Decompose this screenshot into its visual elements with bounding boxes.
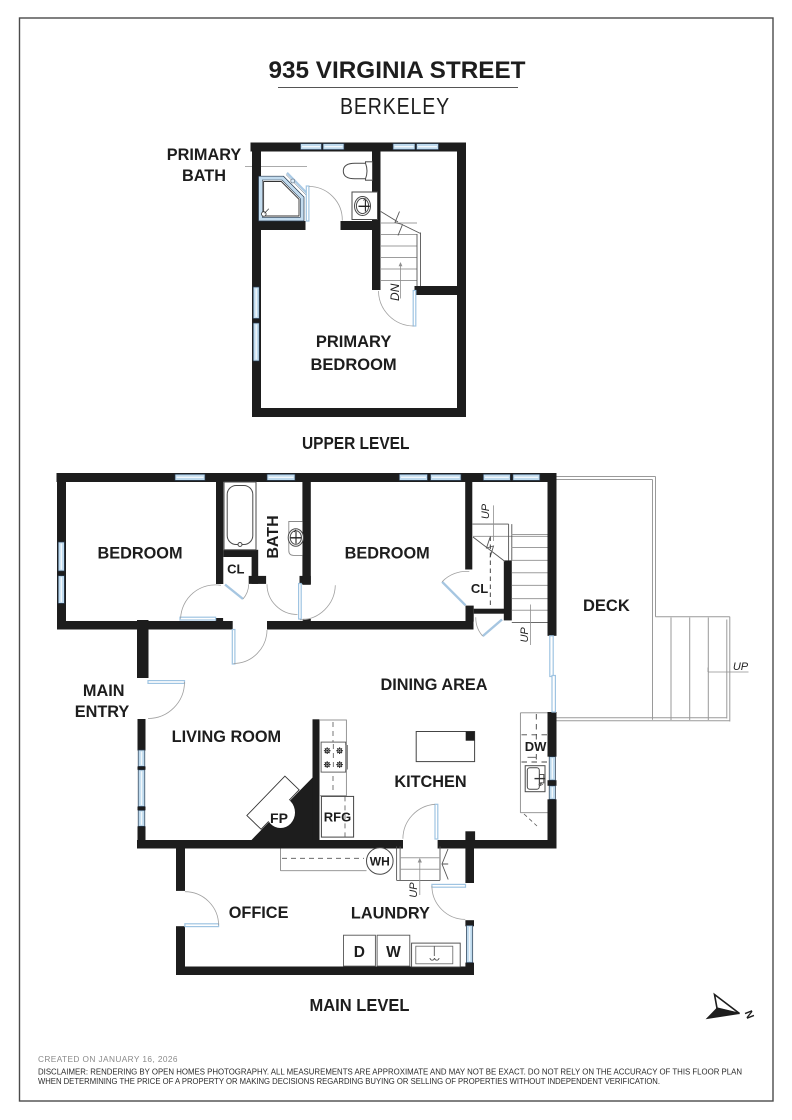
svg-text:DISCLAIMER: RENDERING BY OPEN: DISCLAIMER: RENDERING BY OPEN HOMES PHOT… [38, 1067, 742, 1077]
svg-text:ENTRY: ENTRY [75, 703, 130, 721]
svg-text:PRIMARY: PRIMARY [167, 146, 242, 164]
svg-text:BEDROOM: BEDROOM [311, 356, 397, 374]
svg-text:BATH: BATH [182, 167, 226, 185]
svg-text:BERKELEY: BERKELEY [340, 93, 450, 119]
svg-text:RFG: RFG [324, 810, 351, 825]
svg-text:BATH: BATH [265, 515, 282, 558]
svg-text:UP: UP [733, 661, 749, 673]
svg-text:UPPER LEVEL: UPPER LEVEL [302, 433, 410, 453]
svg-text:UP: UP [408, 882, 420, 898]
svg-text:KITCHEN: KITCHEN [394, 773, 466, 791]
svg-text:D: D [354, 944, 365, 961]
svg-text:W: W [386, 944, 401, 961]
svg-text:DINING AREA: DINING AREA [380, 676, 487, 694]
svg-text:935 VIRGINIA STREET: 935 VIRGINIA STREET [269, 57, 526, 84]
svg-text:OFFICE: OFFICE [229, 904, 289, 922]
svg-text:DW: DW [525, 739, 547, 754]
svg-text:CL: CL [471, 581, 488, 596]
svg-text:LIVING ROOM: LIVING ROOM [172, 728, 281, 746]
svg-text:DECK: DECK [583, 597, 630, 615]
svg-text:UP: UP [480, 503, 492, 519]
svg-text:FP: FP [270, 810, 288, 826]
svg-text:WH: WH [370, 855, 390, 869]
svg-text:LAUNDRY: LAUNDRY [351, 905, 430, 923]
svg-text:MAIN LEVEL: MAIN LEVEL [310, 995, 410, 1015]
svg-text:PRIMARY: PRIMARY [316, 333, 391, 351]
svg-text:DN: DN [388, 283, 402, 301]
svg-text:WHEN DETERMINING THE PRICE OF: WHEN DETERMINING THE PRICE OF A PROPERTY… [38, 1076, 660, 1086]
svg-text:MAIN: MAIN [83, 682, 125, 700]
svg-text:BEDROOM: BEDROOM [97, 545, 182, 563]
svg-text:CREATED ON JANUARY 16, 2026: CREATED ON JANUARY 16, 2026 [38, 1054, 178, 1064]
svg-text:BEDROOM: BEDROOM [345, 545, 430, 563]
svg-text:UP: UP [519, 627, 531, 643]
svg-text:CL: CL [227, 562, 244, 577]
